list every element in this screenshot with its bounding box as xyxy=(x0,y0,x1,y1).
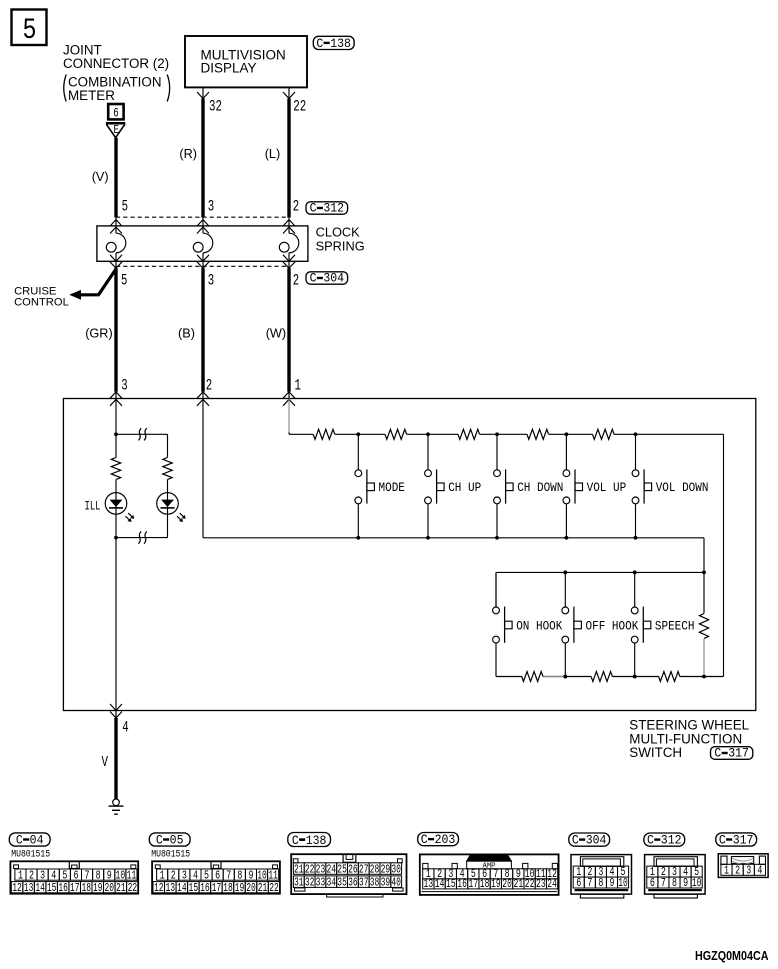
svg-text:24: 24 xyxy=(547,878,557,891)
svg-text:17: 17 xyxy=(212,882,222,895)
svg-text:2: 2 xyxy=(735,864,740,877)
svg-text:4: 4 xyxy=(122,718,128,736)
svg-text:23: 23 xyxy=(316,863,326,876)
svg-text:20: 20 xyxy=(502,878,512,891)
svg-text:5: 5 xyxy=(122,197,128,215)
svg-text:7: 7 xyxy=(661,877,666,890)
svg-text:1: 1 xyxy=(724,864,729,877)
svg-text:23: 23 xyxy=(536,878,546,891)
svg-text:16: 16 xyxy=(457,878,467,891)
svg-text:SPRING: SPRING xyxy=(316,239,365,254)
svg-text:24: 24 xyxy=(326,863,336,876)
svg-text:12: 12 xyxy=(12,882,22,895)
svg-text:5: 5 xyxy=(204,869,209,882)
svg-text:E: E xyxy=(113,123,119,137)
svg-text:10: 10 xyxy=(116,869,126,882)
svg-text:CONNECTOR (2): CONNECTOR (2) xyxy=(63,56,169,71)
svg-text:34: 34 xyxy=(326,877,336,890)
svg-text:C–304: C–304 xyxy=(572,833,607,848)
svg-text:2: 2 xyxy=(293,271,299,289)
svg-text:14: 14 xyxy=(35,882,45,895)
svg-text:20: 20 xyxy=(246,882,256,895)
svg-text:38: 38 xyxy=(370,877,380,890)
svg-text:1: 1 xyxy=(160,869,165,882)
svg-text:C–312: C–312 xyxy=(310,202,345,216)
svg-text:C–04: C–04 xyxy=(16,833,44,848)
svg-text:C–312: C–312 xyxy=(647,833,682,848)
svg-text:(W): (W) xyxy=(266,326,286,340)
svg-text:(R): (R) xyxy=(179,147,197,161)
svg-text:(GR): (GR) xyxy=(85,326,112,340)
svg-text:ON HOOK: ON HOOK xyxy=(516,619,563,633)
svg-text:13: 13 xyxy=(424,878,434,891)
svg-text:7: 7 xyxy=(587,877,592,890)
svg-text:6: 6 xyxy=(576,877,581,890)
svg-text:CH UP: CH UP xyxy=(448,481,481,495)
svg-text:32: 32 xyxy=(209,98,222,116)
svg-text:18: 18 xyxy=(81,882,91,895)
svg-text:(V): (V) xyxy=(92,170,109,184)
svg-text:21: 21 xyxy=(294,863,304,876)
svg-text:C–304: C–304 xyxy=(310,272,345,286)
svg-text:37: 37 xyxy=(359,877,369,890)
svg-text:2: 2 xyxy=(29,869,34,882)
svg-text:6: 6 xyxy=(215,869,220,882)
svg-text:8: 8 xyxy=(672,877,677,890)
svg-text:(L): (L) xyxy=(265,147,281,161)
svg-text:C–138: C–138 xyxy=(292,833,327,848)
svg-text:MODE: MODE xyxy=(379,481,405,495)
svg-text:(B): (B) xyxy=(178,326,195,340)
svg-text:35: 35 xyxy=(337,877,347,890)
svg-text:OFF HOOK: OFF HOOK xyxy=(586,619,639,633)
svg-text:19: 19 xyxy=(491,878,501,891)
svg-text:VOL DOWN: VOL DOWN xyxy=(656,481,709,495)
svg-text:ILL: ILL xyxy=(85,499,101,513)
svg-text:6: 6 xyxy=(113,106,119,121)
svg-text:C–138: C–138 xyxy=(316,36,351,51)
svg-text:27: 27 xyxy=(359,863,369,876)
svg-text:6: 6 xyxy=(73,869,78,882)
svg-text:16: 16 xyxy=(58,882,68,895)
svg-text:6: 6 xyxy=(650,877,655,890)
svg-text:39: 39 xyxy=(381,877,391,890)
svg-text:3: 3 xyxy=(182,869,187,882)
svg-text:5: 5 xyxy=(23,14,37,48)
svg-text:22: 22 xyxy=(293,98,306,116)
svg-text:22: 22 xyxy=(525,878,535,891)
svg-text:15: 15 xyxy=(189,882,199,895)
svg-text:30: 30 xyxy=(391,863,401,876)
svg-text:15: 15 xyxy=(47,882,57,895)
svg-text:5: 5 xyxy=(62,869,67,882)
svg-text:DISPLAY: DISPLAY xyxy=(201,60,257,75)
svg-text:3: 3 xyxy=(208,197,214,215)
svg-text:10: 10 xyxy=(692,877,702,890)
svg-text:1: 1 xyxy=(18,869,23,882)
svg-text:7: 7 xyxy=(85,869,90,882)
svg-text:SWITCH: SWITCH xyxy=(629,745,682,760)
svg-text:MU801515: MU801515 xyxy=(151,849,190,861)
svg-text:9: 9 xyxy=(248,869,253,882)
svg-text:12: 12 xyxy=(154,882,164,895)
svg-text:8: 8 xyxy=(237,869,242,882)
svg-text:C–05: C–05 xyxy=(156,833,184,848)
svg-text:28: 28 xyxy=(370,863,380,876)
svg-text:C–203: C–203 xyxy=(421,832,456,847)
svg-text:10: 10 xyxy=(257,869,267,882)
svg-text:MU801515: MU801515 xyxy=(11,849,50,861)
svg-text:13: 13 xyxy=(24,882,34,895)
svg-text:STEERING WHEEL: STEERING WHEEL xyxy=(629,718,749,733)
svg-text:9: 9 xyxy=(683,877,688,890)
svg-text:5: 5 xyxy=(121,271,127,289)
svg-text:CLOCK: CLOCK xyxy=(316,224,361,239)
svg-text:2: 2 xyxy=(293,197,299,215)
svg-text:19: 19 xyxy=(235,882,245,895)
svg-text:MULTI-FUNCTION: MULTI-FUNCTION xyxy=(629,731,742,746)
svg-text:17: 17 xyxy=(469,878,479,891)
svg-text:21: 21 xyxy=(258,882,268,895)
svg-text:21: 21 xyxy=(116,882,126,895)
svg-text:9: 9 xyxy=(107,869,112,882)
svg-text:HGZQ0M04CA: HGZQ0M04CA xyxy=(695,949,769,963)
svg-text:22: 22 xyxy=(305,863,315,876)
svg-text:15: 15 xyxy=(446,878,456,891)
svg-text:2: 2 xyxy=(171,869,176,882)
svg-text:3: 3 xyxy=(121,376,127,394)
svg-text:3: 3 xyxy=(40,869,45,882)
svg-text:11: 11 xyxy=(268,869,278,882)
svg-text:8: 8 xyxy=(598,877,603,890)
svg-text:20: 20 xyxy=(105,882,115,895)
svg-text:13: 13 xyxy=(165,882,175,895)
svg-text:16: 16 xyxy=(200,882,210,895)
svg-text:9: 9 xyxy=(609,877,614,890)
svg-text:METER: METER xyxy=(68,88,115,103)
svg-text:SPEECH: SPEECH xyxy=(655,619,695,633)
svg-text:CONTROL: CONTROL xyxy=(14,296,69,308)
svg-text:4: 4 xyxy=(51,869,56,882)
svg-text:C–317: C–317 xyxy=(719,833,754,848)
svg-text:10: 10 xyxy=(618,877,628,890)
svg-text:22: 22 xyxy=(269,882,279,895)
svg-text:V: V xyxy=(102,754,109,771)
svg-text:29: 29 xyxy=(381,863,391,876)
svg-text:18: 18 xyxy=(223,882,233,895)
svg-text:33: 33 xyxy=(316,877,326,890)
svg-text:8: 8 xyxy=(96,869,101,882)
svg-text:32: 32 xyxy=(305,877,315,890)
svg-text:VOL UP: VOL UP xyxy=(587,481,627,495)
svg-text:C–317: C–317 xyxy=(714,747,749,761)
svg-text:4: 4 xyxy=(193,869,198,882)
svg-text:1: 1 xyxy=(295,376,301,394)
svg-text:14: 14 xyxy=(435,878,445,891)
svg-text:21: 21 xyxy=(514,878,524,891)
svg-text:26: 26 xyxy=(348,863,358,876)
svg-text:19: 19 xyxy=(93,882,103,895)
svg-text:7: 7 xyxy=(226,869,231,882)
svg-text:22: 22 xyxy=(128,882,138,895)
svg-text:25: 25 xyxy=(337,863,347,876)
svg-text:4: 4 xyxy=(757,864,762,877)
svg-text:18: 18 xyxy=(480,878,490,891)
svg-text:11: 11 xyxy=(127,869,137,882)
svg-text:3: 3 xyxy=(746,864,751,877)
svg-text:CH DOWN: CH DOWN xyxy=(517,481,563,495)
svg-text:3: 3 xyxy=(208,271,214,289)
svg-text:36: 36 xyxy=(348,877,358,890)
svg-text:17: 17 xyxy=(70,882,80,895)
svg-text:2: 2 xyxy=(206,376,212,394)
svg-text:14: 14 xyxy=(177,882,187,895)
